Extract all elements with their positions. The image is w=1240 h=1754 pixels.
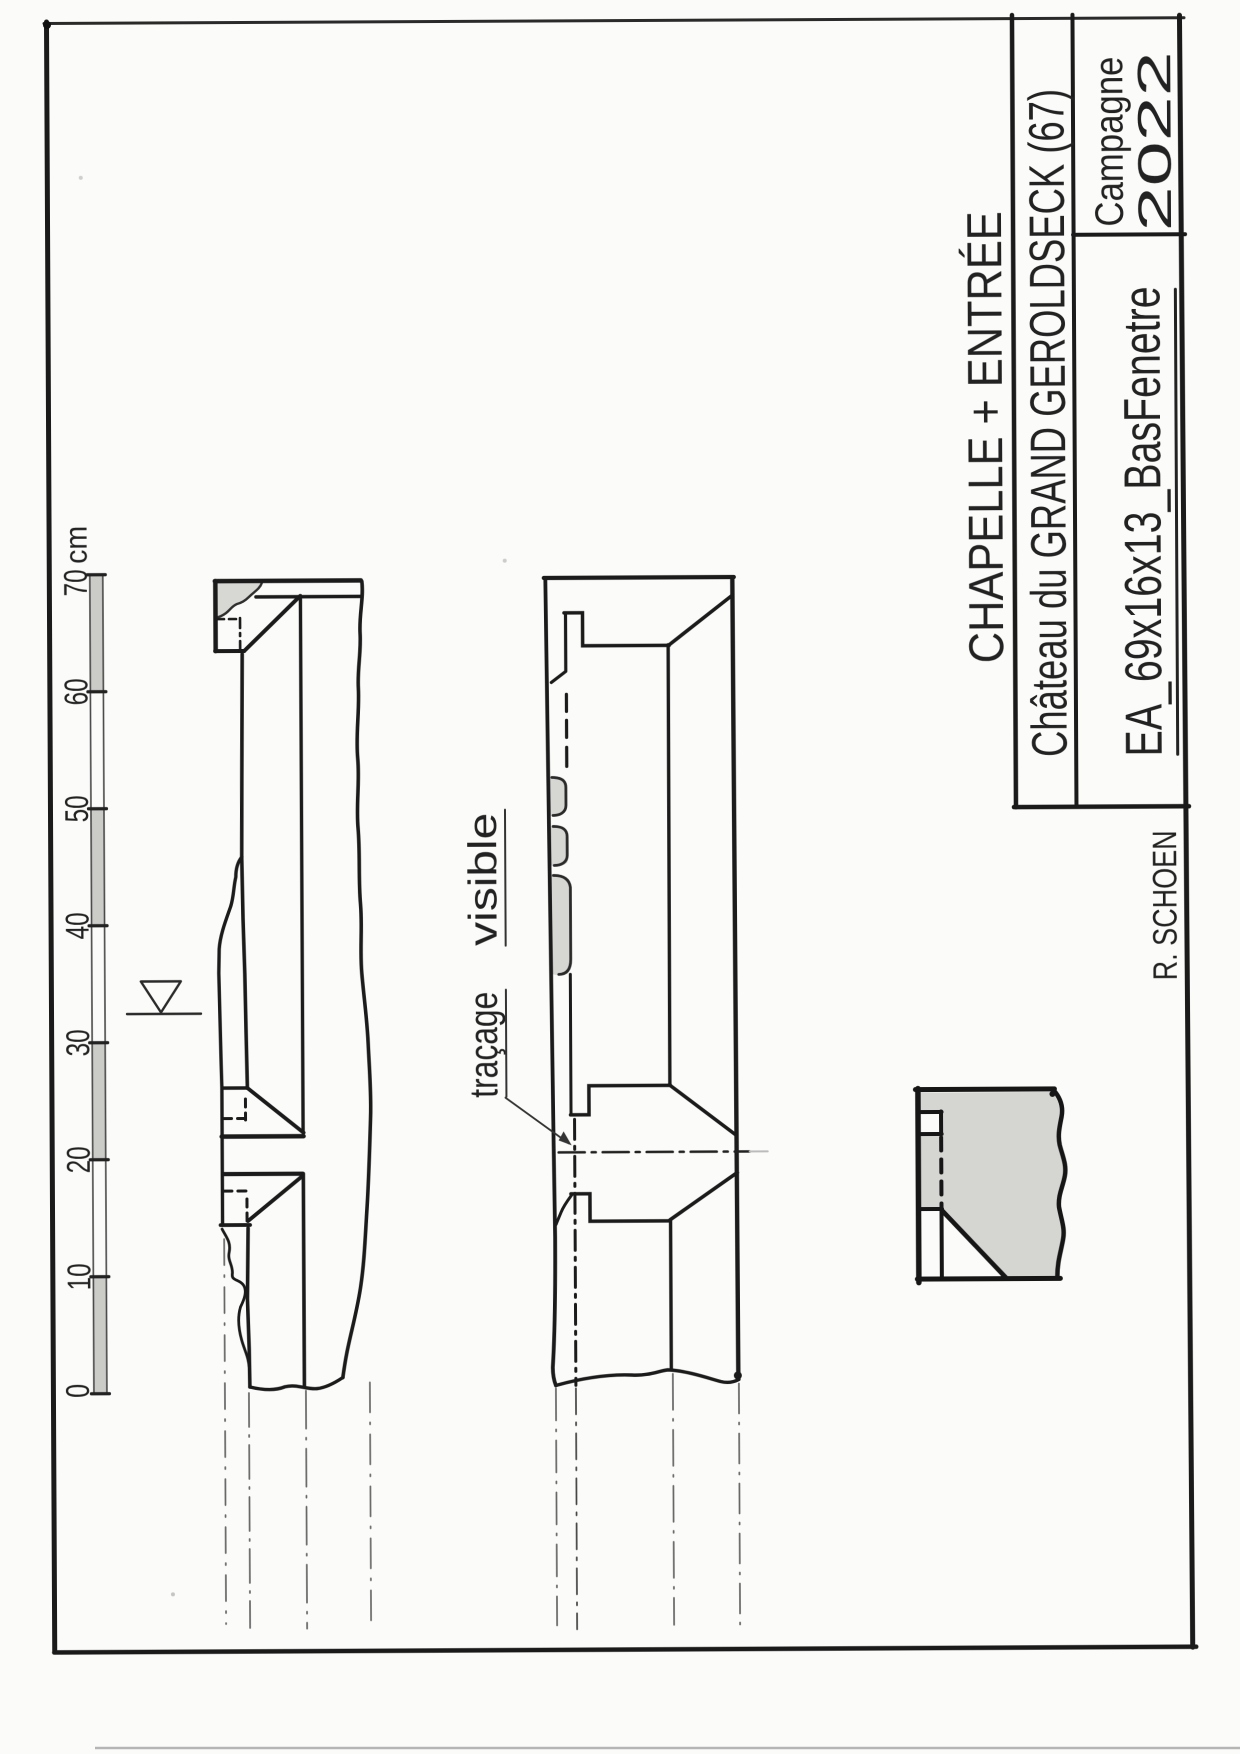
svg-text:50: 50 [58, 795, 95, 822]
svg-text:traçage: traçage [462, 992, 507, 1098]
svg-text:40: 40 [58, 912, 95, 939]
svg-text:30: 30 [59, 1029, 96, 1056]
svg-text:R. SCHOEN: R. SCHOEN [1146, 830, 1185, 980]
svg-text:cm: cm [59, 526, 94, 564]
svg-text:CHAPELLE + ENTRÉE: CHAPELLE + ENTRÉE [958, 211, 1014, 663]
svg-text:60: 60 [57, 678, 94, 705]
svg-text:Campagne: Campagne [1087, 56, 1132, 226]
svg-text:20: 20 [60, 1146, 97, 1173]
svg-text:70: 70 [57, 569, 94, 596]
svg-text:10: 10 [60, 1263, 97, 1290]
svg-text:2022: 2022 [1127, 51, 1181, 231]
svg-text:Château du GRAND GEROLDSECK (6: Château du GRAND GEROLDSECK (67) [1018, 89, 1077, 757]
svg-text:EA_69x16x13_BasFenetre: EA_69x16x13_BasFenetre [1113, 286, 1173, 756]
svg-text:0: 0 [59, 1384, 96, 1398]
svg-text:visible: visible [461, 813, 506, 946]
